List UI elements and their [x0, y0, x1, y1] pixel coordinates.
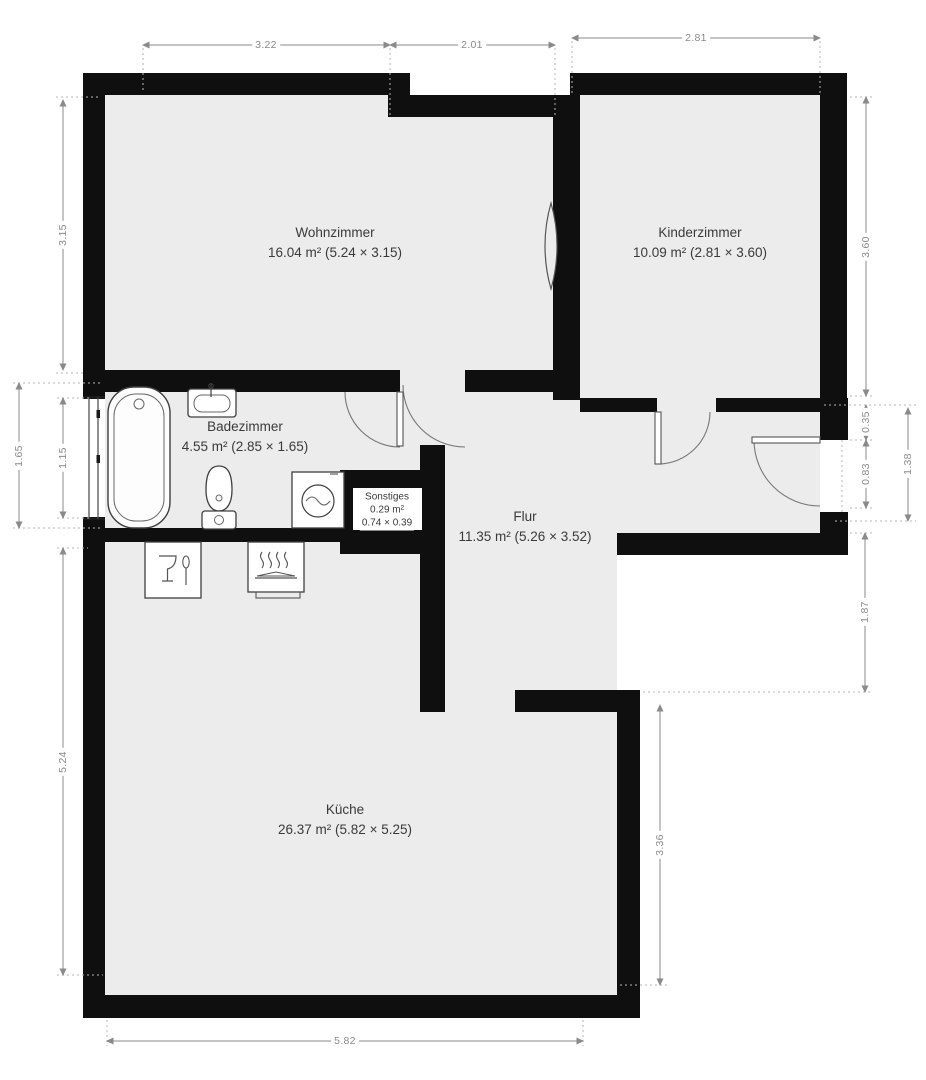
room-name: Kinderzimmer: [633, 223, 767, 243]
wall: [83, 995, 640, 1018]
wall: [617, 690, 640, 1018]
wall: [515, 690, 617, 712]
dimension-label-1-87: 1.87: [859, 598, 871, 626]
wall: [465, 370, 580, 392]
wall: [820, 512, 848, 533]
room-floor-kueche: [105, 528, 617, 995]
wall: [820, 398, 848, 440]
room-size: 0.74 × 0.39: [362, 517, 412, 530]
room-name: Flur: [459, 507, 592, 527]
dimension-label-3-36: 3.36: [654, 831, 666, 859]
wall: [388, 95, 580, 117]
wall: [580, 398, 657, 412]
room-label-kueche: Küche 26.37 m² (5.82 × 5.25): [278, 800, 412, 841]
room-size: 26.37 m² (5.82 × 5.25): [278, 820, 412, 840]
doorway-kinderzimmer-gap: [657, 398, 716, 412]
wall: [420, 445, 445, 712]
dimension-label-3-22: 3.22: [252, 39, 280, 51]
wall: [83, 518, 105, 1018]
room-size: 11.35 m² (5.26 × 3.52): [459, 527, 592, 547]
floor-plan: 3.22 2.01 2.81 3.15 1.65 1.15 5.24 3.60 …: [0, 0, 926, 1080]
dimension-label-2-81: 2.81: [682, 32, 710, 44]
wall: [553, 95, 580, 400]
room-size: 10.09 m² (2.81 × 3.60): [633, 243, 767, 263]
room-size: 4.55 m² (2.85 × 1.65): [182, 437, 308, 457]
room-label-kinderzimmer: Kinderzimmer 10.09 m² (2.81 × 3.60): [633, 223, 767, 264]
room-name: Badezimmer: [182, 417, 308, 437]
dimension-label-3-60: 3.60: [860, 233, 872, 261]
room-label-wohnzimmer: Wohnzimmer 16.04 m² (5.24 × 3.15): [268, 223, 402, 264]
room-size: 16.04 m² (5.24 × 3.15): [268, 243, 402, 263]
room-label-flur: Flur 11.35 m² (5.26 × 3.52): [459, 507, 592, 548]
doorway-wohnzimmer-gap: [400, 370, 465, 392]
room-area: 0.29 m²: [362, 504, 412, 517]
wall: [83, 73, 410, 95]
wall: [83, 370, 400, 392]
dimension-label-5-82: 5.82: [331, 1035, 359, 1047]
dimension-label-1-65: 1.65: [13, 442, 25, 470]
dimension-label-5-24: 5.24: [57, 748, 69, 776]
room-label-badezimmer: Badezimmer 4.55 m² (2.85 × 1.65): [182, 417, 308, 458]
dimension-label-1-38: 1.38: [902, 450, 914, 478]
dimension-label-0-35: 0.35: [860, 408, 872, 436]
room-name: Küche: [278, 800, 412, 820]
wall: [716, 398, 821, 412]
wall: [570, 73, 847, 95]
wall: [617, 533, 848, 555]
room-name: Sonstiges: [362, 491, 412, 504]
wall: [83, 73, 105, 398]
dimension-label-1-15: 1.15: [57, 444, 69, 472]
wall: [820, 73, 847, 400]
room-name: Wohnzimmer: [268, 223, 402, 243]
window: [83, 396, 105, 520]
room-label-sonstiges: Sonstiges 0.29 m² 0.74 × 0.39: [360, 490, 414, 531]
dimension-label-2-01: 2.01: [458, 39, 486, 51]
dimension-label-3-15: 3.15: [57, 221, 69, 249]
dimension-label-0-83: 0.83: [860, 460, 872, 488]
